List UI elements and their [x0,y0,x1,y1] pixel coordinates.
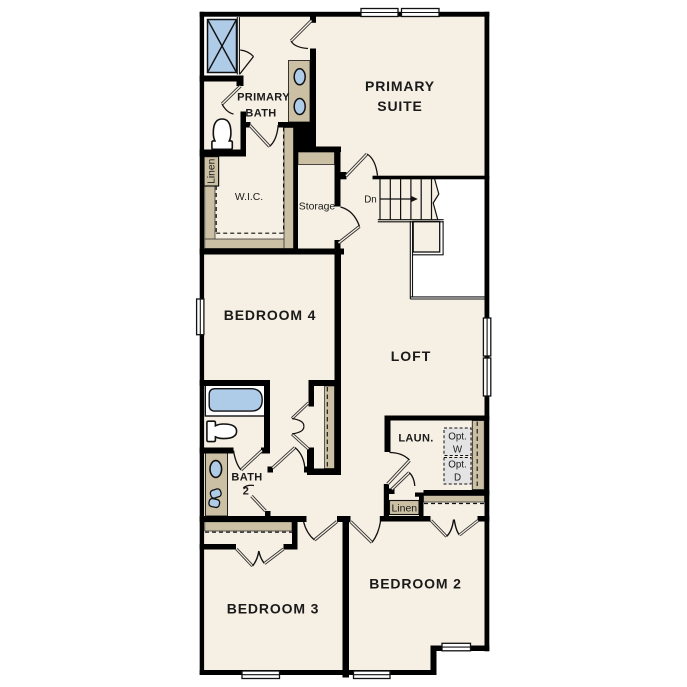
svg-text:BEDROOM 2: BEDROOM 2 [369,576,461,592]
svg-text:PRIMARY: PRIMARY [365,78,435,94]
svg-text:Dn: Dn [364,195,377,206]
svg-text:Opt.: Opt. [448,460,467,471]
svg-text:BATH: BATH [245,108,276,120]
svg-text:Linen: Linen [391,503,417,515]
svg-text:LOFT: LOFT [391,348,432,364]
svg-text:PRIMARY: PRIMARY [237,92,290,104]
svg-text:Linen: Linen [207,158,218,183]
svg-text:Storage: Storage [299,202,336,213]
svg-text:2: 2 [243,486,249,498]
svg-text:SUITE: SUITE [377,98,422,114]
svg-text:W.I.C.: W.I.C. [235,192,263,203]
svg-text:BATH: BATH [231,472,262,484]
svg-text:LAUN.: LAUN. [398,433,433,445]
svg-text:W: W [453,445,463,456]
svg-text:D: D [454,473,461,484]
svg-text:BEDROOM 3: BEDROOM 3 [227,601,319,617]
svg-text:Opt.: Opt. [448,432,467,443]
svg-text:BEDROOM 4: BEDROOM 4 [224,307,316,323]
